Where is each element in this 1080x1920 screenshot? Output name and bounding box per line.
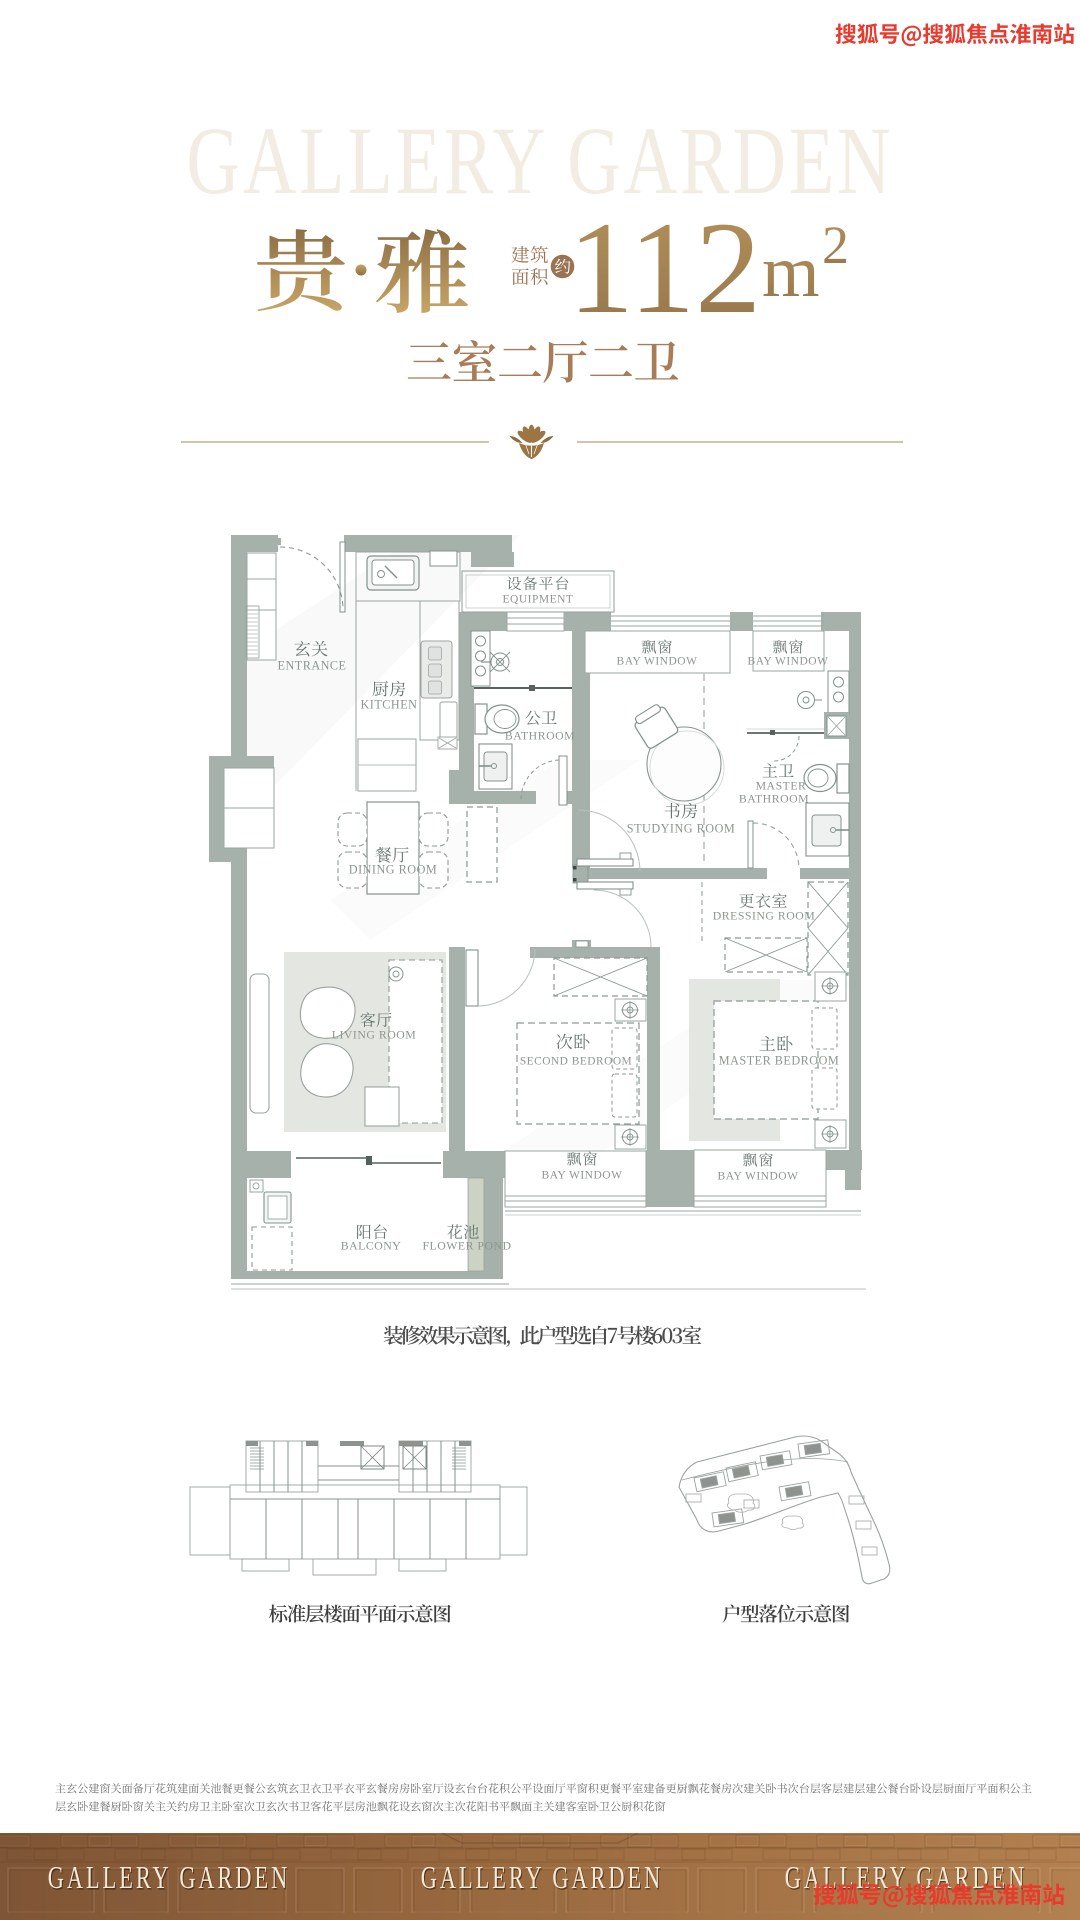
svg-text:112: 112 bbox=[568, 194, 761, 341]
svg-text:BAY WINDOW: BAY WINDOW bbox=[718, 1171, 799, 1183]
svg-text:SECOND BEDROOM: SECOND BEDROOM bbox=[520, 1055, 632, 1067]
svg-text:ENTRANCE: ENTRANCE bbox=[278, 659, 347, 673]
svg-text:BAY WINDOW: BAY WINDOW bbox=[542, 1170, 623, 1182]
svg-text:DINING ROOM: DINING ROOM bbox=[349, 863, 437, 877]
svg-text:LIVING ROOM: LIVING ROOM bbox=[332, 1028, 416, 1042]
svg-text:STUDYING ROOM: STUDYING ROOM bbox=[627, 822, 735, 836]
svg-text:BATHROOM: BATHROOM bbox=[505, 729, 575, 743]
svg-text:EQUIPMENT: EQUIPMENT bbox=[503, 593, 574, 605]
svg-text:FLOWER POND: FLOWER POND bbox=[422, 1239, 511, 1253]
svg-text:BATHROOM: BATHROOM bbox=[739, 792, 809, 806]
svg-text:DRESSING ROOM: DRESSING ROOM bbox=[713, 909, 816, 923]
svg-text:GALLERY GARDEN: GALLERY GARDEN bbox=[48, 1860, 290, 1895]
svg-text:MASTER: MASTER bbox=[756, 779, 807, 793]
svg-text:KITCHEN: KITCHEN bbox=[361, 698, 418, 712]
svg-text:2: 2 bbox=[822, 215, 849, 275]
svg-text:BAY WINDOW: BAY WINDOW bbox=[617, 656, 698, 668]
svg-text:GALLERY GARDEN: GALLERY GARDEN bbox=[421, 1860, 663, 1895]
svg-text:MASTER BEDROOM: MASTER BEDROOM bbox=[719, 1054, 839, 1068]
svg-text:BAY WINDOW: BAY WINDOW bbox=[748, 656, 829, 668]
svg-text:GALLERY GARDEN: GALLERY GARDEN bbox=[186, 108, 893, 214]
svg-text:BALCONY: BALCONY bbox=[341, 1239, 402, 1253]
svg-text:m: m bbox=[762, 231, 820, 313]
